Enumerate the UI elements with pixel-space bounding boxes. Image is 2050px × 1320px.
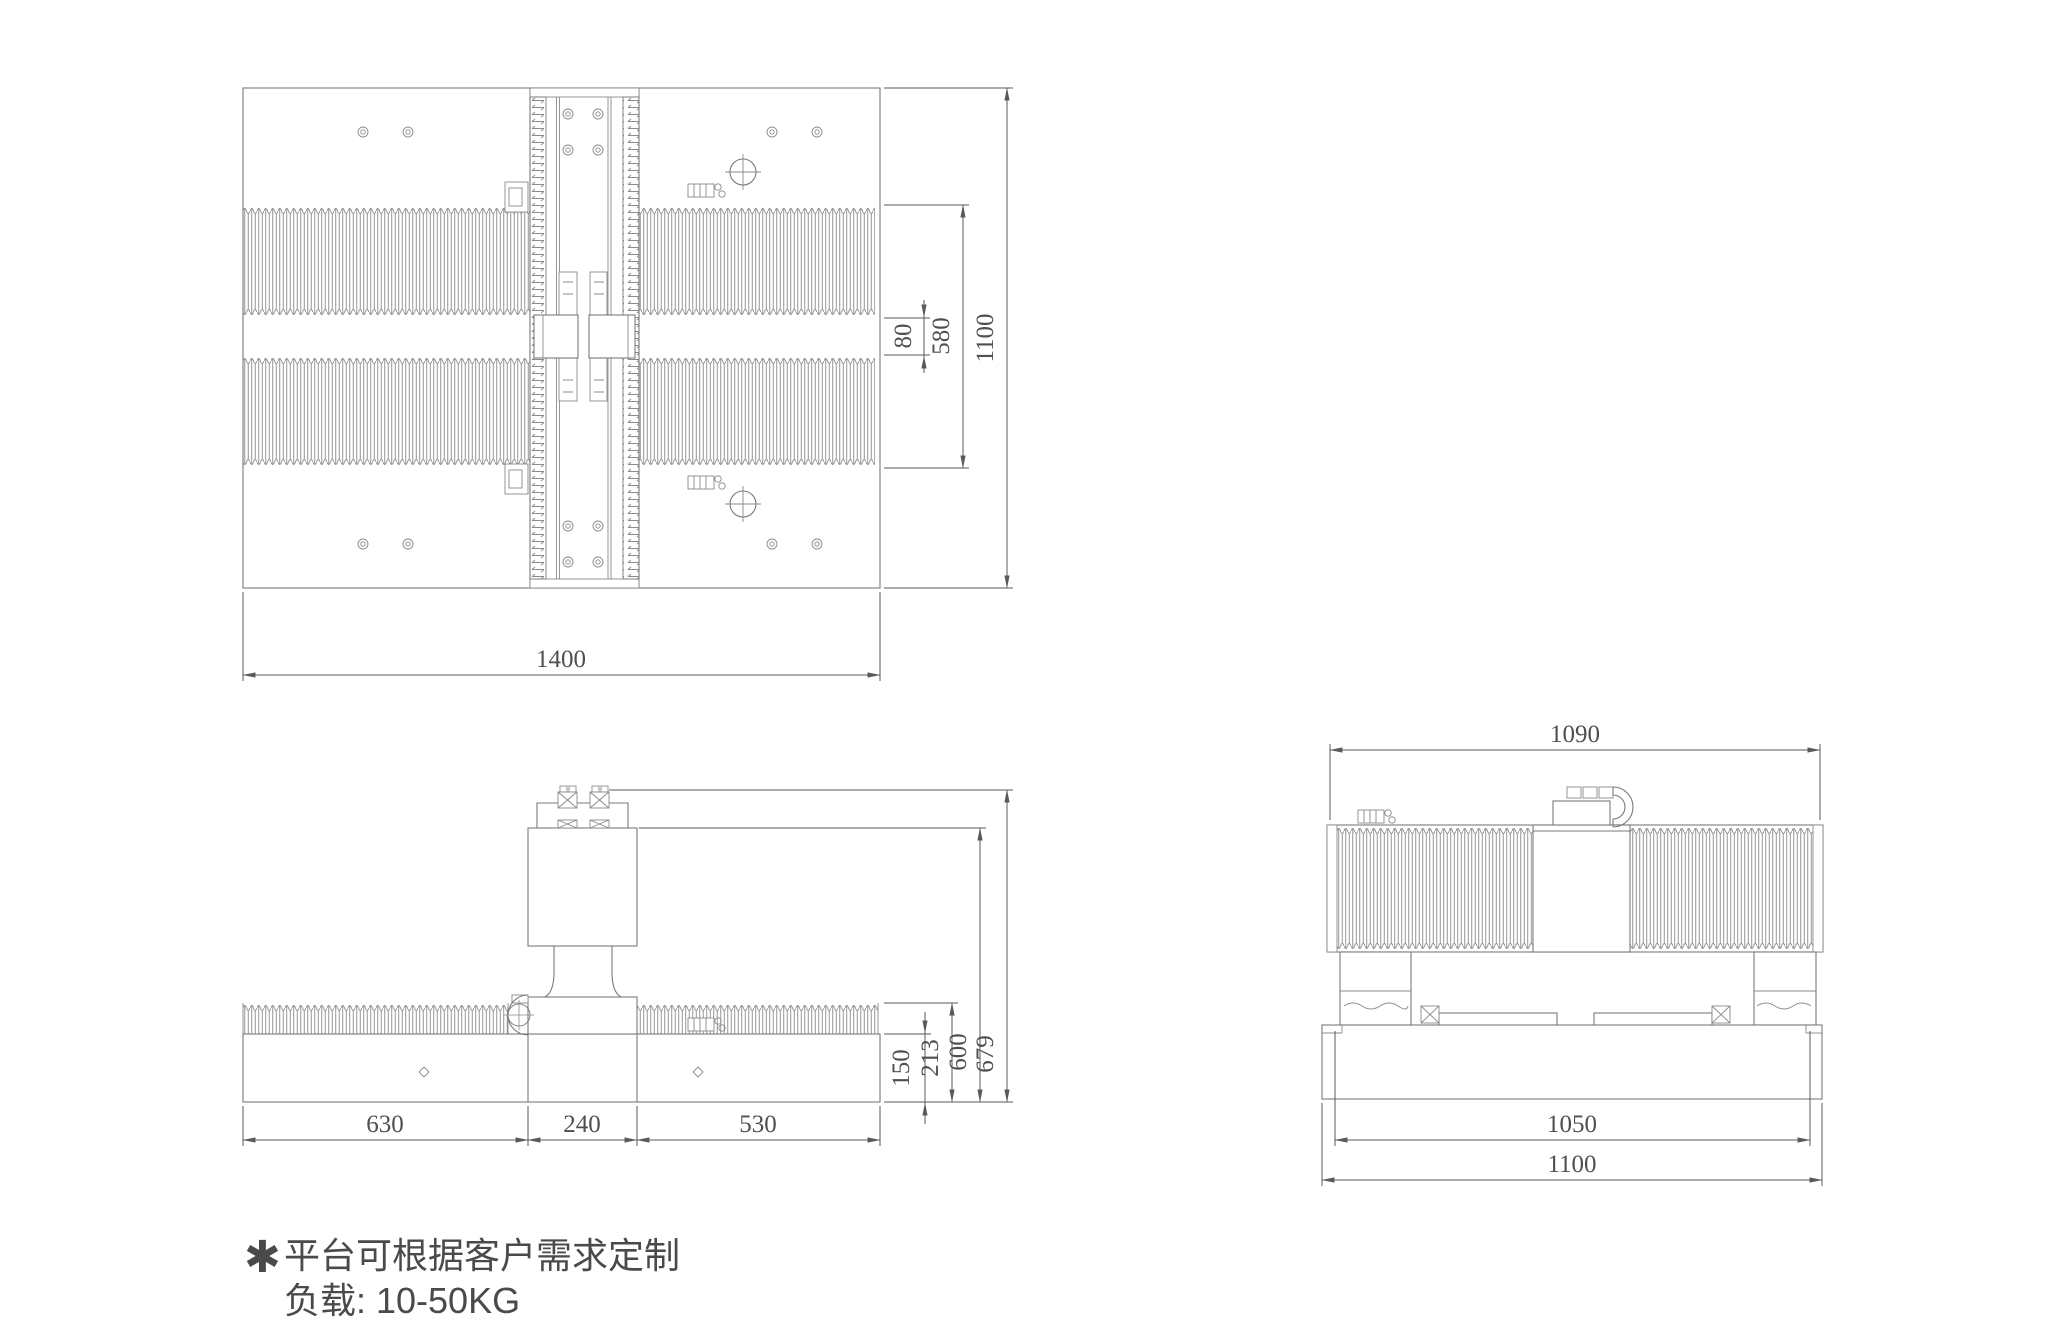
front-bellows-right — [637, 1003, 878, 1034]
front-bearing-assembly — [537, 786, 628, 828]
bearing-icon — [1421, 1006, 1439, 1023]
dim-value: 600 — [945, 1033, 972, 1071]
front-view: 630 240 530 150 213 600 6 — [243, 786, 1013, 1146]
drawing-canvas: 1400 1100 580 80 — [0, 0, 2050, 1320]
dim-value: 80 — [890, 324, 917, 349]
dim-value: 1400 — [536, 646, 586, 673]
rail-column — [530, 88, 639, 588]
column-cap-top — [530, 88, 639, 97]
notes: ✱ 平台可根据客户需求定制 负载: 10-50KG — [244, 1233, 680, 1320]
motor-box — [528, 828, 637, 946]
dim-value: 1090 — [1550, 721, 1600, 748]
front-motor-column — [528, 828, 637, 997]
top-view: 1400 1100 580 80 — [243, 88, 1013, 681]
dim-value: 150 — [888, 1049, 915, 1087]
bearing-icon — [590, 792, 609, 808]
side-carriage-cover — [1533, 825, 1630, 952]
front-bellows-left — [243, 1003, 508, 1034]
dim-front-seg-center: 240 — [528, 1106, 637, 1146]
column-cap-bottom — [530, 579, 639, 588]
side-view: 1090 1050 1100 — [1322, 721, 1823, 1186]
note-bullet: ✱ — [244, 1233, 281, 1282]
dim-front-seg-left: 630 — [243, 1106, 528, 1146]
note-line2: 负载: 10-50KG — [284, 1280, 520, 1320]
side-legs — [1340, 952, 1816, 1025]
dim-value: 213 — [917, 1039, 944, 1077]
cable-chain — [1553, 787, 1633, 827]
bellows-lower-left — [243, 355, 530, 468]
side-base — [1322, 1025, 1822, 1099]
clamp-block-upper — [505, 182, 528, 212]
dim-value: 580 — [928, 317, 955, 355]
front-carriage — [504, 995, 637, 1035]
bearing-icon — [558, 792, 577, 808]
dim-value: 1050 — [1547, 1111, 1597, 1138]
bellows-upper-left — [243, 205, 530, 318]
dim-top-center-gap: 80 — [884, 300, 930, 373]
dim-value: 679 — [972, 1035, 999, 1073]
side-slab — [1327, 825, 1823, 952]
bellows-upper-right — [639, 205, 875, 318]
dim-value: 1100 — [1547, 1151, 1596, 1178]
note-line1: 平台可根据客户需求定制 — [284, 1235, 680, 1276]
cad-drawing: 1400 1100 580 80 — [0, 0, 2050, 1320]
side-screw-bracket — [1358, 810, 1395, 823]
dim-value: 630 — [366, 1111, 404, 1138]
dim-top-width: 1400 — [243, 592, 880, 681]
dim-value: 1100 — [972, 313, 999, 362]
dim-front-seg-right: 530 — [637, 1106, 880, 1146]
side-bellows-left — [1337, 825, 1533, 952]
front-base — [243, 1034, 880, 1102]
dim-value: 530 — [739, 1111, 777, 1138]
bellows-lower-right — [639, 355, 875, 468]
clamp-block-lower — [505, 464, 528, 494]
dim-value: 240 — [563, 1111, 601, 1138]
side-bellows-right — [1630, 825, 1813, 952]
bearing-icon — [1712, 1006, 1730, 1023]
